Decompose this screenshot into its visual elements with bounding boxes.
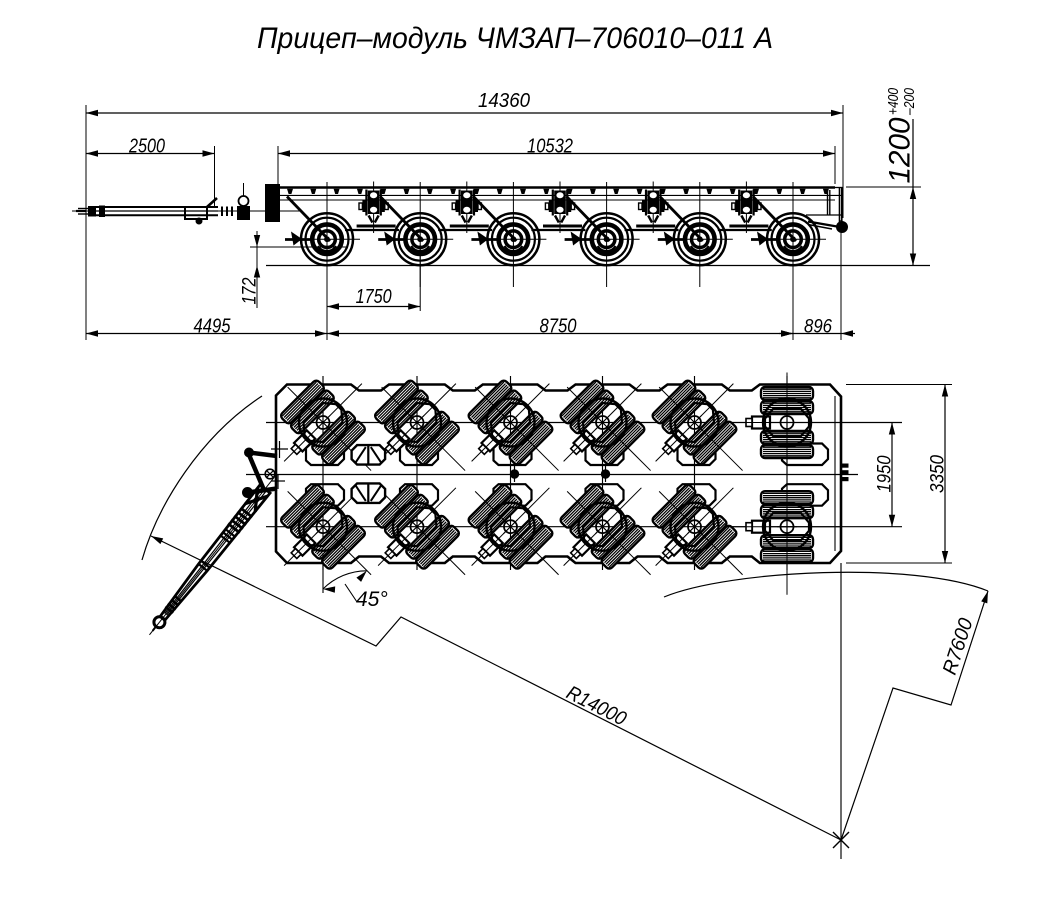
svg-text:896: 896 <box>804 317 832 338</box>
svg-text:4495: 4495 <box>194 316 232 338</box>
svg-text:172: 172 <box>240 277 261 304</box>
svg-text:10532: 10532 <box>527 136 573 158</box>
svg-text:8750: 8750 <box>540 316 577 338</box>
svg-text:Прицеп–модуль ЧМЗАП–706010–01: Прицеп–модуль ЧМЗАП–706010–011 А <box>257 22 773 55</box>
svg-text:1950: 1950 <box>875 455 896 492</box>
svg-text:14360: 14360 <box>478 90 530 112</box>
svg-text:45°: 45° <box>356 588 388 611</box>
svg-text:–200: –200 <box>901 87 918 115</box>
svg-text:1750: 1750 <box>356 286 392 308</box>
svg-text:2500: 2500 <box>128 136 165 158</box>
svg-text:3350: 3350 <box>928 455 949 493</box>
svg-text:+400: +400 <box>885 87 902 115</box>
svg-text:1200: 1200 <box>884 117 917 183</box>
